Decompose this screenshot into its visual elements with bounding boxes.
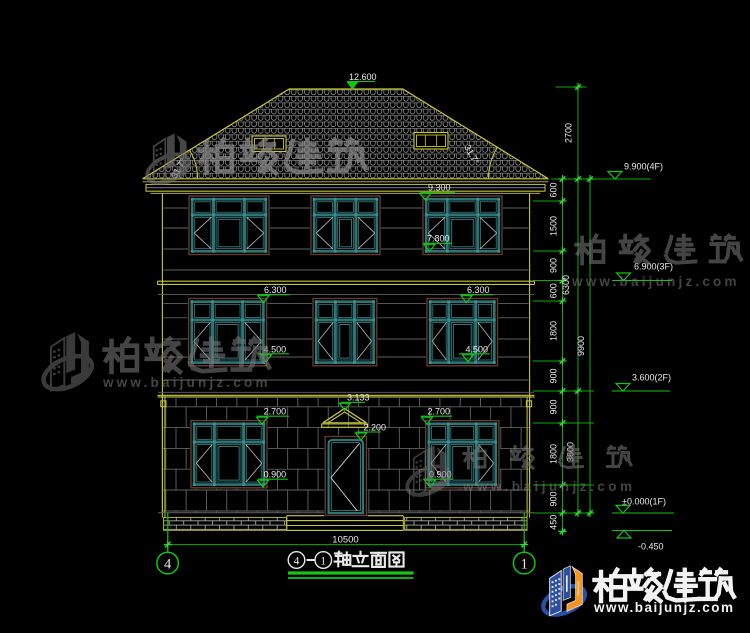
svg-text:9.300: 9.300 <box>428 183 451 193</box>
svg-text:900: 900 <box>549 258 559 273</box>
svg-text:450: 450 <box>549 515 559 530</box>
svg-text:2.700: 2.700 <box>428 407 451 417</box>
svg-text:www.baijunjz.com: www.baijunjz.com <box>593 600 735 615</box>
svg-text:6300: 6300 <box>561 275 571 295</box>
svg-text:0.900: 0.900 <box>264 470 287 480</box>
svg-text:4.500: 4.500 <box>466 345 489 355</box>
svg-text:3.133: 3.133 <box>347 393 370 403</box>
svg-text:900: 900 <box>549 399 559 414</box>
svg-text:600: 600 <box>549 182 559 197</box>
svg-text:9.900(4F): 9.900(4F) <box>624 162 663 172</box>
svg-text:1800: 1800 <box>549 321 559 341</box>
svg-text:6.300: 6.300 <box>467 285 490 295</box>
svg-text:-0.450: -0.450 <box>638 542 664 552</box>
svg-text:2700: 2700 <box>564 123 574 143</box>
svg-text:6.300: 6.300 <box>264 285 287 295</box>
svg-text:www.baijunjz.com: www.baijunjz.com <box>571 274 740 289</box>
svg-text:600: 600 <box>549 283 559 298</box>
svg-text:1: 1 <box>320 555 326 567</box>
svg-text:9900: 9900 <box>576 336 586 356</box>
svg-text:1: 1 <box>521 556 528 572</box>
svg-text:7.800: 7.800 <box>427 234 450 244</box>
svg-text:2.700: 2.700 <box>264 407 287 417</box>
svg-text:1800: 1800 <box>549 444 559 464</box>
svg-text:10500: 10500 <box>332 535 358 546</box>
svg-text:4: 4 <box>164 556 172 572</box>
svg-text:2.200: 2.200 <box>364 423 387 433</box>
svg-text:3.600(2F): 3.600(2F) <box>632 373 671 383</box>
svg-text:900: 900 <box>549 368 559 383</box>
svg-text:12.600: 12.600 <box>349 72 377 82</box>
svg-text:www.baijunjz.com: www.baijunjz.com <box>462 479 636 494</box>
svg-text:www.baijunjz.com: www.baijunjz.com <box>102 375 271 390</box>
svg-text:1500: 1500 <box>549 216 559 236</box>
svg-text:4: 4 <box>294 555 300 567</box>
